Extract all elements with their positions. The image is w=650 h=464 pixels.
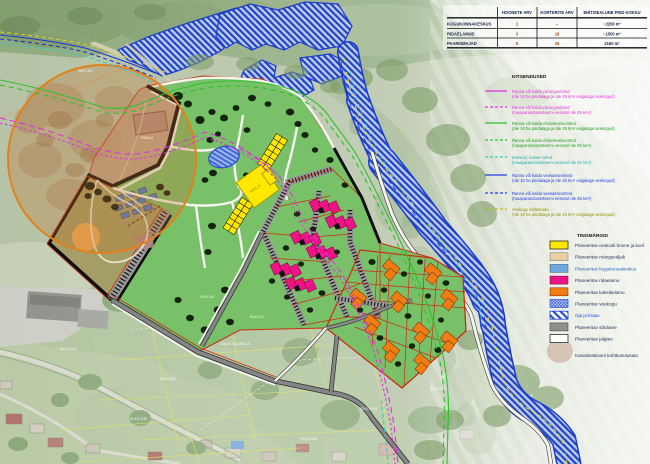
svg-text:50-KC-064: 50-KC-064 <box>160 377 176 381</box>
svg-text:PAARISMAJAD: PAARISMAJAD <box>447 41 477 46</box>
svg-text:EHITISEALUNE PIND KOKKU: EHITISEALUNE PIND KOKKU <box>583 10 640 15</box>
svg-text:(maaparandusüsteemi eesvool ül: (maaparandusüsteemi eesvool üle 25 km²) <box>512 160 592 165</box>
svg-text:Planeeritav mänguväljak: Planeeritav mänguväljak <box>575 255 626 260</box>
svg-text:(maaparandusüsteemi eesvool ül: (maaparandusüsteemi eesvool üle 25 km²) <box>512 196 592 201</box>
svg-text:Oja ja kraav: Oja ja kraav <box>575 313 600 318</box>
svg-text:Planeeritav kaksikelamu: Planeeritav kaksikelamu <box>575 290 625 295</box>
svg-text:16: 16 <box>555 31 560 36</box>
svg-text:(üle 10 ha pindalaga ja üle 25: (üle 10 ha pindalaga ja üle 25 km² valga… <box>512 126 616 131</box>
svg-text:RIDAELAMUD: RIDAELAMUD <box>447 31 475 36</box>
svg-text:~2200 m²: ~2200 m² <box>603 22 621 27</box>
svg-text:16: 16 <box>555 41 560 46</box>
svg-text:50-KC-0131: 50-KC-0131 <box>60 347 77 351</box>
svg-text:TIIGIALA: TIIGIALA <box>140 136 154 140</box>
svg-text:Planeeritav erakooli hoone ja: Planeeritav erakooli hoone ja kool <box>575 243 644 248</box>
svg-text:KORTERITE ARV: KORTERITE ARV <box>540 10 573 15</box>
svg-text:Planeeritav jalgtee: Planeeritav jalgtee <box>575 337 613 342</box>
svg-text:(maaparandusüsteemi eesvool ül: (maaparandusüsteemi eesvool üle 25 km²) <box>512 110 592 115</box>
svg-text:KITSENDUSED: KITSENDUSED <box>512 74 547 80</box>
svg-text:Planeeritav ridaelamu: Planeeritav ridaelamu <box>575 278 620 283</box>
svg-text:Planeeritav sõidutee: Planeeritav sõidutee <box>575 325 617 330</box>
svg-text:50-KC-0150: 50-KC-0150 <box>130 417 147 421</box>
svg-text:50-KC-03: 50-KC-03 <box>250 315 264 319</box>
svg-text:34201:001: 34201:001 <box>78 69 93 73</box>
svg-text:Kanalisatsiooni kohtkasutusala: Kanalisatsiooni kohtkasutusala <box>575 353 638 358</box>
svg-text:50-KC-0162: 50-KC-0162 <box>430 387 447 391</box>
svg-text:(üle 10 ha pindalaga ja üle 25: (üle 10 ha pindalaga ja üle 25 km² valga… <box>512 212 616 217</box>
svg-text:(maaparandusüsteemi eesvool ül: (maaparandusüsteemi eesvool üle 25 km²) <box>512 143 592 148</box>
svg-text:AVALIK HALJASALA: AVALIK HALJASALA <box>220 342 251 346</box>
svg-text:HOONETE ARV: HOONETE ARV <box>502 10 532 15</box>
svg-text:TINGMÄRGID: TINGMÄRGID <box>577 232 608 239</box>
svg-text:Planeeritav kogukonnakeskus: Planeeritav kogukonnakeskus <box>575 266 637 271</box>
svg-text:KOGUKONNAKESKUS: KOGUKONNAKESKUS <box>447 22 492 27</box>
svg-text:2160 m²: 2160 m² <box>604 41 620 46</box>
svg-text:50-KC-0168: 50-KC-0168 <box>300 437 317 441</box>
svg-text:(üle 10 ha pindalaga ja üle 25: (üle 10 ha pindalaga ja üle 25 km² valga… <box>512 178 616 183</box>
svg-text:(üle 10 ha pindalaga ja üle 25: (üle 10 ha pindalaga ja üle 25 km² valga… <box>512 94 616 99</box>
svg-text:Planeeritav veekogu: Planeeritav veekogu <box>575 302 617 307</box>
svg-text:50-KC-0163: 50-KC-0163 <box>360 407 377 411</box>
svg-text:~1500 m²: ~1500 m² <box>603 31 621 36</box>
svg-text:50-KC-04: 50-KC-04 <box>200 295 214 299</box>
